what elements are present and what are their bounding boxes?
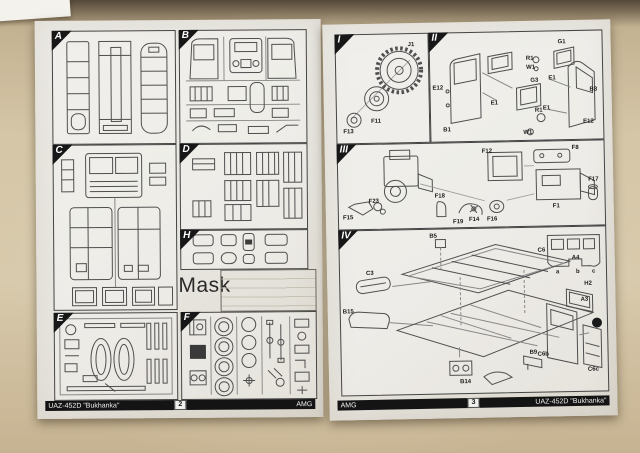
part-label: B3 <box>589 87 597 93</box>
section-label: D <box>182 145 189 155</box>
part-label: C6 <box>538 248 546 254</box>
part-label: C6c <box>588 367 599 373</box>
chassis-assembly-drawing <box>339 226 608 395</box>
part-label: A4 <box>572 255 580 261</box>
step-4: IV B5 C3 B15 A4 A3 B14 B9 C6 a b c H2 C6… <box>338 225 609 396</box>
section-label: A <box>55 32 62 42</box>
part-label: B15 <box>343 309 354 315</box>
part-label: A3 <box>580 297 588 303</box>
part-label: H2 <box>584 281 592 287</box>
section-c: C <box>52 144 177 311</box>
part-label: R1 <box>535 108 543 114</box>
part-label: F1 <box>553 203 560 209</box>
part-label: c <box>592 269 595 275</box>
part-label: R1 <box>526 56 534 62</box>
section-b: B <box>179 29 308 144</box>
step-label: II <box>431 34 437 44</box>
part-label: F15 <box>343 215 353 221</box>
part-label: F11 <box>371 119 381 125</box>
section-label: C <box>55 146 62 156</box>
part-label: B5 <box>429 234 437 240</box>
page-number: 3 <box>467 398 479 408</box>
brand-mark: AMG <box>296 401 312 408</box>
part-label: F16 <box>487 216 497 222</box>
part-label: b <box>576 269 580 275</box>
part-label: a <box>556 269 559 275</box>
part-label: W1 <box>523 130 532 136</box>
section-label: E <box>57 314 64 324</box>
part-label: F23 <box>369 199 379 205</box>
section-d: D <box>179 143 308 230</box>
part-label: F8 <box>572 145 579 151</box>
part-label: B14 <box>460 379 471 385</box>
part-label: F12 <box>482 149 492 155</box>
step-2: II E12 B1 E1 G3 R1 W1 G1 R1 W1 E1 B3 E1 … <box>428 29 604 142</box>
part-label: E1 <box>491 100 498 106</box>
door-assembly-drawing <box>429 30 603 141</box>
part-label: G1 <box>558 39 566 45</box>
part-label: B1 <box>443 127 451 133</box>
section-e: E <box>54 312 179 401</box>
step-label: I <box>337 35 340 45</box>
section-f: F <box>181 311 318 400</box>
instruction-page-left: A <box>35 19 324 419</box>
part-label: W1 <box>526 65 535 71</box>
footer-bar-left-page: UAZ-452D "Bukhanka" AMG 2 <box>45 399 315 411</box>
part-label: G3 <box>530 78 538 84</box>
section-label: H <box>183 231 190 241</box>
part-label: F18 <box>434 193 444 199</box>
sprue-c-drawing <box>53 145 176 310</box>
step-3: III F15 F23 F18 F19 F14 F16 F12 F8 F1 F1… <box>337 139 607 230</box>
brand-mark: AMG <box>340 402 356 409</box>
part-label: F17 <box>588 177 598 183</box>
footer-bar-right-page: AMG UAZ-452D "Bukhanka" 3 <box>337 395 609 410</box>
section-label: B <box>182 31 189 41</box>
mask-sheet-diagram <box>220 269 316 312</box>
section-a: A <box>52 30 177 145</box>
part-label: B9 <box>530 350 538 356</box>
step-label: IV <box>341 231 351 241</box>
part-label: C3 <box>366 271 374 277</box>
part-label: E1 <box>548 75 555 81</box>
part-label: C6b <box>538 352 549 358</box>
sprue-f-drawing <box>182 312 317 399</box>
part-label: F13 <box>343 129 353 135</box>
part-label: E12 <box>432 85 443 91</box>
part-label: E1 <box>543 105 550 111</box>
step-1: I J1 F11 F13 <box>334 33 430 145</box>
section-label: F <box>184 313 190 323</box>
part-label: J1 <box>408 42 415 48</box>
part-label: F14 <box>469 217 479 223</box>
instruction-page-right: I J1 F11 F13 <box>322 19 618 420</box>
step-label: III <box>340 145 349 155</box>
kit-title: UAZ-452D "Bukhanka" <box>535 397 606 405</box>
part-label: F19 <box>453 219 463 225</box>
kit-title: UAZ-452D "Bukhanka" <box>48 402 119 409</box>
page-number: 2 <box>174 400 186 410</box>
paper-scrap <box>0 0 71 22</box>
photo-of-instruction-sheets: A <box>0 0 640 453</box>
section-h: H <box>180 229 308 270</box>
part-label: E12 <box>583 119 594 125</box>
